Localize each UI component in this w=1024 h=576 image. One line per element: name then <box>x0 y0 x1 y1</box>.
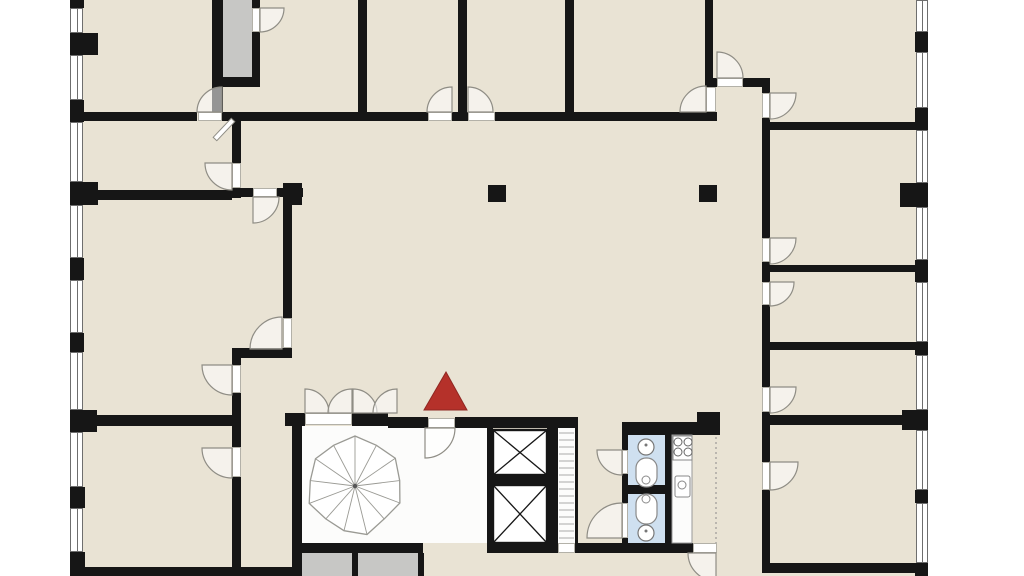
building-floor <box>70 0 928 576</box>
wall <box>575 428 578 543</box>
door-threshold <box>558 543 575 553</box>
wall <box>495 112 706 121</box>
wall <box>768 415 902 425</box>
wall <box>232 121 241 163</box>
wall <box>352 413 388 426</box>
wall <box>705 78 717 87</box>
window <box>916 0 928 32</box>
window <box>916 207 928 260</box>
wall <box>490 543 558 553</box>
door-threshold <box>428 112 452 121</box>
wall <box>232 348 292 358</box>
door-threshold <box>232 163 241 188</box>
wall <box>70 333 84 352</box>
door-threshold <box>717 78 743 87</box>
wall <box>565 0 574 112</box>
door-threshold <box>468 112 495 121</box>
door-threshold <box>762 282 770 305</box>
wall <box>768 265 915 272</box>
door-threshold <box>283 318 292 348</box>
wall <box>900 183 928 207</box>
wall <box>252 0 260 8</box>
floor-plan <box>0 0 1024 576</box>
wall <box>70 0 84 8</box>
wall <box>628 485 672 494</box>
wall <box>575 543 693 553</box>
window <box>70 55 83 100</box>
wall <box>762 490 770 573</box>
wall <box>915 490 928 503</box>
window <box>70 280 83 333</box>
wall <box>232 477 241 570</box>
wall <box>488 475 550 485</box>
wall <box>547 428 558 543</box>
wall <box>697 412 720 435</box>
wall <box>622 422 697 435</box>
wall <box>418 553 424 576</box>
basement-stair-box <box>302 553 352 576</box>
wall <box>70 487 85 508</box>
wall <box>212 77 260 87</box>
wall <box>762 130 770 238</box>
basement-stair-box <box>358 553 418 576</box>
window <box>70 352 83 410</box>
door-threshold <box>693 543 717 553</box>
wall <box>706 112 717 121</box>
wall <box>252 32 260 77</box>
door-threshold <box>762 462 770 490</box>
stairwell-lobby <box>302 426 490 543</box>
wall <box>487 428 493 553</box>
wall <box>232 188 241 198</box>
door-threshold <box>622 503 628 538</box>
wall <box>915 342 928 355</box>
wall <box>292 426 302 576</box>
window <box>70 432 83 487</box>
wall <box>70 258 84 280</box>
door-threshold <box>762 93 770 118</box>
wall <box>915 32 928 52</box>
wall <box>762 122 917 130</box>
wall <box>915 260 928 282</box>
wall <box>283 205 292 318</box>
wall <box>212 0 223 121</box>
wall <box>762 563 928 573</box>
window <box>916 52 928 108</box>
wall <box>83 112 197 121</box>
wall <box>352 553 358 576</box>
door-threshold <box>762 238 770 262</box>
wall <box>699 185 717 202</box>
wall <box>283 183 302 205</box>
door-threshold <box>305 413 352 425</box>
wall <box>83 415 232 426</box>
wall <box>285 413 305 426</box>
window <box>916 503 928 563</box>
wall <box>70 33 98 55</box>
door-threshold <box>198 112 222 121</box>
window <box>916 130 928 183</box>
wall <box>70 567 292 576</box>
door-threshold <box>622 450 628 474</box>
wall <box>70 182 98 205</box>
window <box>916 282 928 342</box>
door-threshold <box>232 447 241 477</box>
wall <box>622 422 628 450</box>
wall <box>458 0 467 112</box>
wall <box>222 112 428 121</box>
kitchen-counter <box>672 435 692 543</box>
wall <box>762 78 770 93</box>
door-threshold <box>232 365 241 393</box>
wall <box>452 112 468 121</box>
wall <box>488 185 506 202</box>
wall <box>902 410 928 430</box>
door-threshold <box>762 387 770 412</box>
wall <box>358 0 367 112</box>
wall <box>232 393 241 447</box>
window <box>916 355 928 410</box>
wall <box>241 188 253 197</box>
window <box>70 508 83 552</box>
service-shaft <box>558 428 575 543</box>
wall <box>232 358 241 365</box>
door-threshold <box>253 188 277 197</box>
wall <box>768 342 915 350</box>
door-threshold <box>252 8 260 32</box>
window <box>916 430 928 490</box>
window <box>70 122 83 182</box>
wall <box>292 543 423 553</box>
window <box>70 8 83 33</box>
wall <box>70 100 84 122</box>
door-threshold <box>428 418 455 428</box>
stair-shaft <box>223 0 252 77</box>
door-threshold <box>706 87 716 112</box>
wall <box>705 0 713 80</box>
wall <box>622 538 628 553</box>
wall <box>388 417 428 428</box>
wall <box>455 417 490 428</box>
wall <box>97 190 232 200</box>
window <box>70 205 83 258</box>
wall <box>490 417 578 428</box>
